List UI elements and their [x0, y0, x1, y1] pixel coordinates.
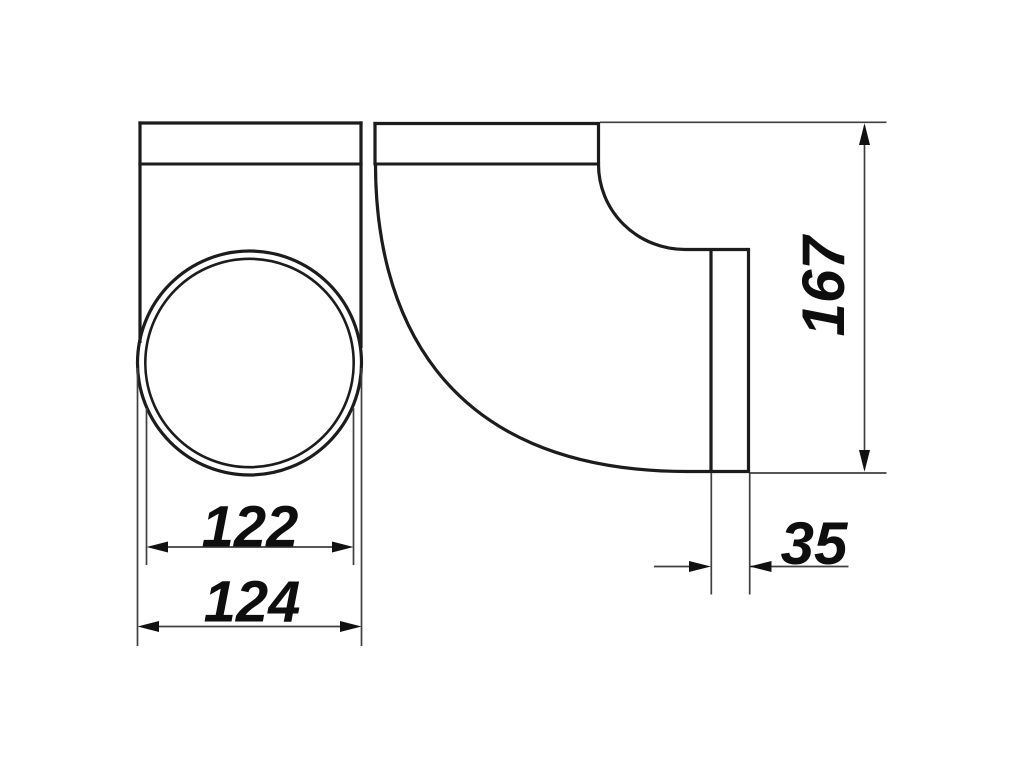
- svg-text:122: 122: [202, 495, 299, 560]
- svg-text:35: 35: [781, 510, 849, 577]
- svg-text:167: 167: [790, 234, 857, 337]
- svg-text:124: 124: [204, 570, 301, 635]
